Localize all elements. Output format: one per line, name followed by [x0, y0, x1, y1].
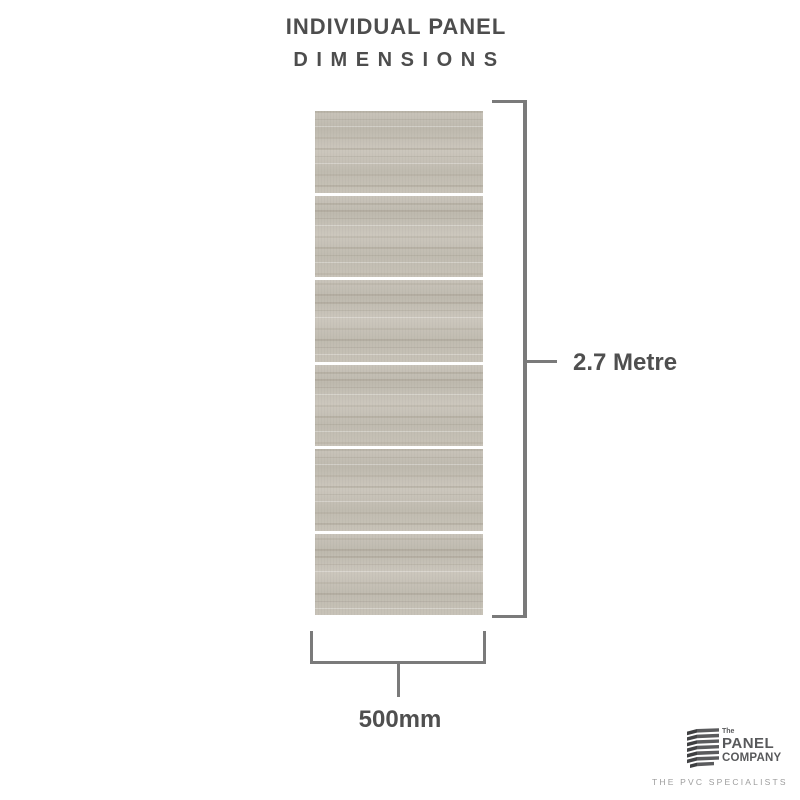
width-bracket-stem: [397, 661, 400, 697]
stacked-panels-icon: [684, 728, 720, 770]
width-dimension-label: 500mm: [328, 706, 472, 734]
panel-tile-segment: [315, 365, 483, 447]
panel-tile-segment: [315, 280, 483, 362]
height-bracket-line: [523, 100, 527, 618]
logo-name-panel: PANEL: [722, 736, 781, 751]
panel-tile-segment: [315, 111, 483, 193]
logo-name-company: COMPANY: [722, 753, 781, 765]
title-line-2: D I M E N S I O N S: [270, 49, 522, 72]
height-bracket-tick: [527, 360, 557, 363]
height-bracket-bottom-arm: [492, 615, 527, 618]
diagram-title: INDIVIDUAL PANEL D I M E N S I O N S: [270, 14, 522, 72]
height-bracket-top-arm: [492, 100, 527, 103]
panel-image: [315, 111, 483, 615]
title-line-1: INDIVIDUAL PANEL: [270, 14, 522, 40]
width-bracket-left-tick: [310, 631, 313, 664]
panel-tile-segment: [315, 449, 483, 531]
panel-dimensions-diagram: INDIVIDUAL PANEL D I M E N S I O N S 2.7…: [0, 0, 800, 800]
panel-tile-segment: [315, 534, 483, 616]
width-bracket-right-tick: [483, 631, 486, 664]
logo-the: The: [722, 728, 781, 735]
panel-tile-segment: [315, 196, 483, 278]
height-dimension-label: 2.7 Metre: [573, 349, 677, 377]
logo-tagline: THE PVC SPECIALISTS: [652, 777, 788, 787]
company-logo: The PANEL COMPANY THE PVC SPECIALISTS: [650, 727, 796, 793]
logo-wordmark: The PANEL COMPANY: [722, 728, 781, 765]
